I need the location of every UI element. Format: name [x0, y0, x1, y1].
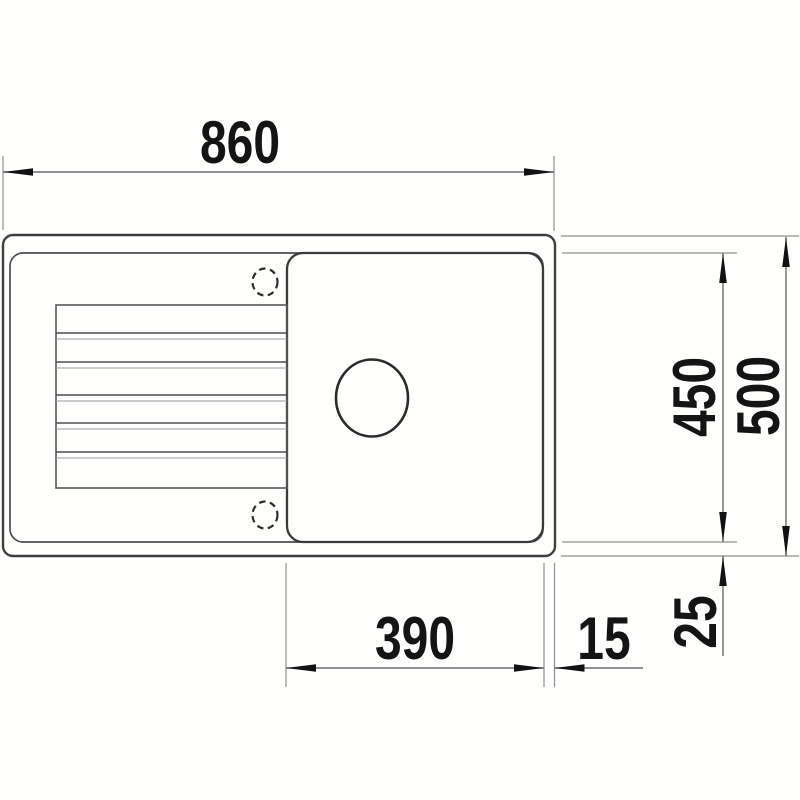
drainboard: [56, 305, 287, 488]
sink-rim-inner-edge: [10, 253, 543, 542]
dim-label-450: 450: [661, 357, 728, 437]
sink-dimension-diagram: 860 500 450 25: [0, 0, 800, 800]
arrowhead-down: [782, 526, 790, 556]
sink-plan-view: [3, 235, 555, 556]
dimension-annotations: 860 500 450 25: [3, 109, 799, 687]
dim-label-15: 15: [577, 605, 630, 672]
dim-label-25: 25: [662, 595, 729, 648]
arrowhead-up: [719, 556, 727, 586]
dim-label-390: 390: [375, 605, 455, 672]
arrowhead-right: [514, 664, 544, 672]
arrowhead-left: [286, 664, 316, 672]
tap-hole-bottom: [253, 502, 278, 529]
dim-bowl-width: 390: [286, 563, 544, 687]
dim-overall-width: 860: [3, 109, 554, 231]
arrowhead-up: [719, 253, 727, 283]
dim-bottom-rim: 25: [662, 556, 729, 656]
dim-label-860: 860: [200, 109, 280, 176]
dim-right-rim: 15: [555, 563, 644, 687]
tap-hole-top: [253, 269, 278, 296]
drain-hole: [336, 360, 408, 437]
arrowhead-right: [524, 168, 554, 176]
dim-bowl-depth: 450: [562, 253, 737, 542]
sink-bowl: [287, 253, 543, 542]
technical-drawing-canvas: 860 500 450 25: [0, 0, 800, 800]
arrowhead-left: [3, 168, 33, 176]
arrowhead-up: [782, 237, 790, 267]
dim-label-500: 500: [725, 356, 792, 436]
arrowhead-down: [719, 512, 727, 542]
